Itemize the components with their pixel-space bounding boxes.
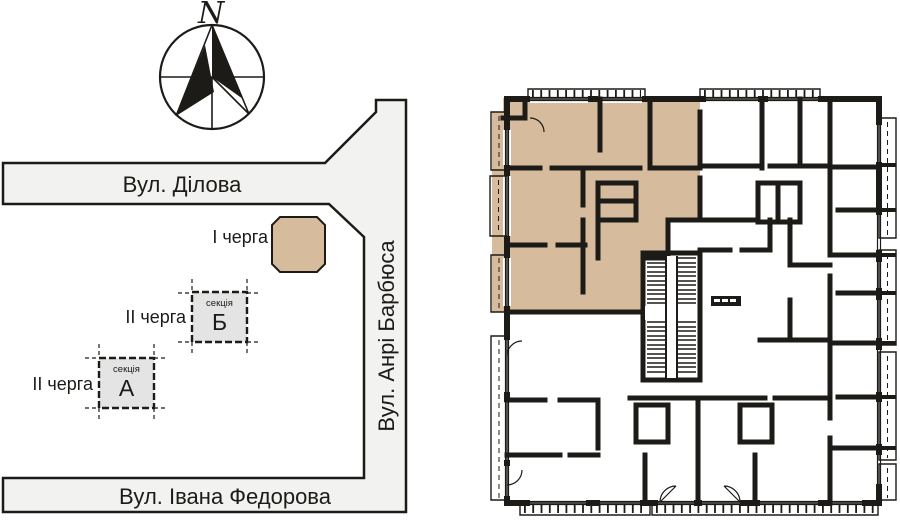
street-label-fedorova: Вул. Івана Федорова [119,484,332,509]
floor-plan [488,86,900,518]
building-phase-1-shape[interactable] [272,217,325,272]
phase-2a-label: ІІ черга [32,374,94,394]
elevator-marker [711,296,741,306]
compass-north-label: N [197,0,226,31]
street-label-dilova: Вул. Ділова [123,172,243,197]
building-phase-1[interactable] [272,217,325,272]
site-plan: N Вул. Ділова Вул. Анрі Барбюса Вул. Іва… [0,0,460,522]
stair-stringer [666,256,677,378]
compass: N [160,0,264,129]
building-b-section-caption: секція [206,298,233,309]
stair-core [645,256,697,378]
site-and-floor-plan-page: N Вул. Ділова Вул. Анрі Барбюса Вул. Іва… [0,0,900,522]
building-a-letter: А [119,375,135,401]
building-phase-2-b[interactable]: секція Б [178,279,261,356]
building-phase-2-a[interactable]: секція А [85,344,168,422]
phase-2b-label: ІІ черга [125,307,187,327]
building-b-letter: Б [212,309,227,335]
phase-1-label: І черга [212,227,269,247]
street-label-barbyusa: Вул. Анрі Барбюса [374,240,399,432]
building-a-section-caption: секція [113,364,140,375]
compass-southwest-blade [176,45,214,116]
